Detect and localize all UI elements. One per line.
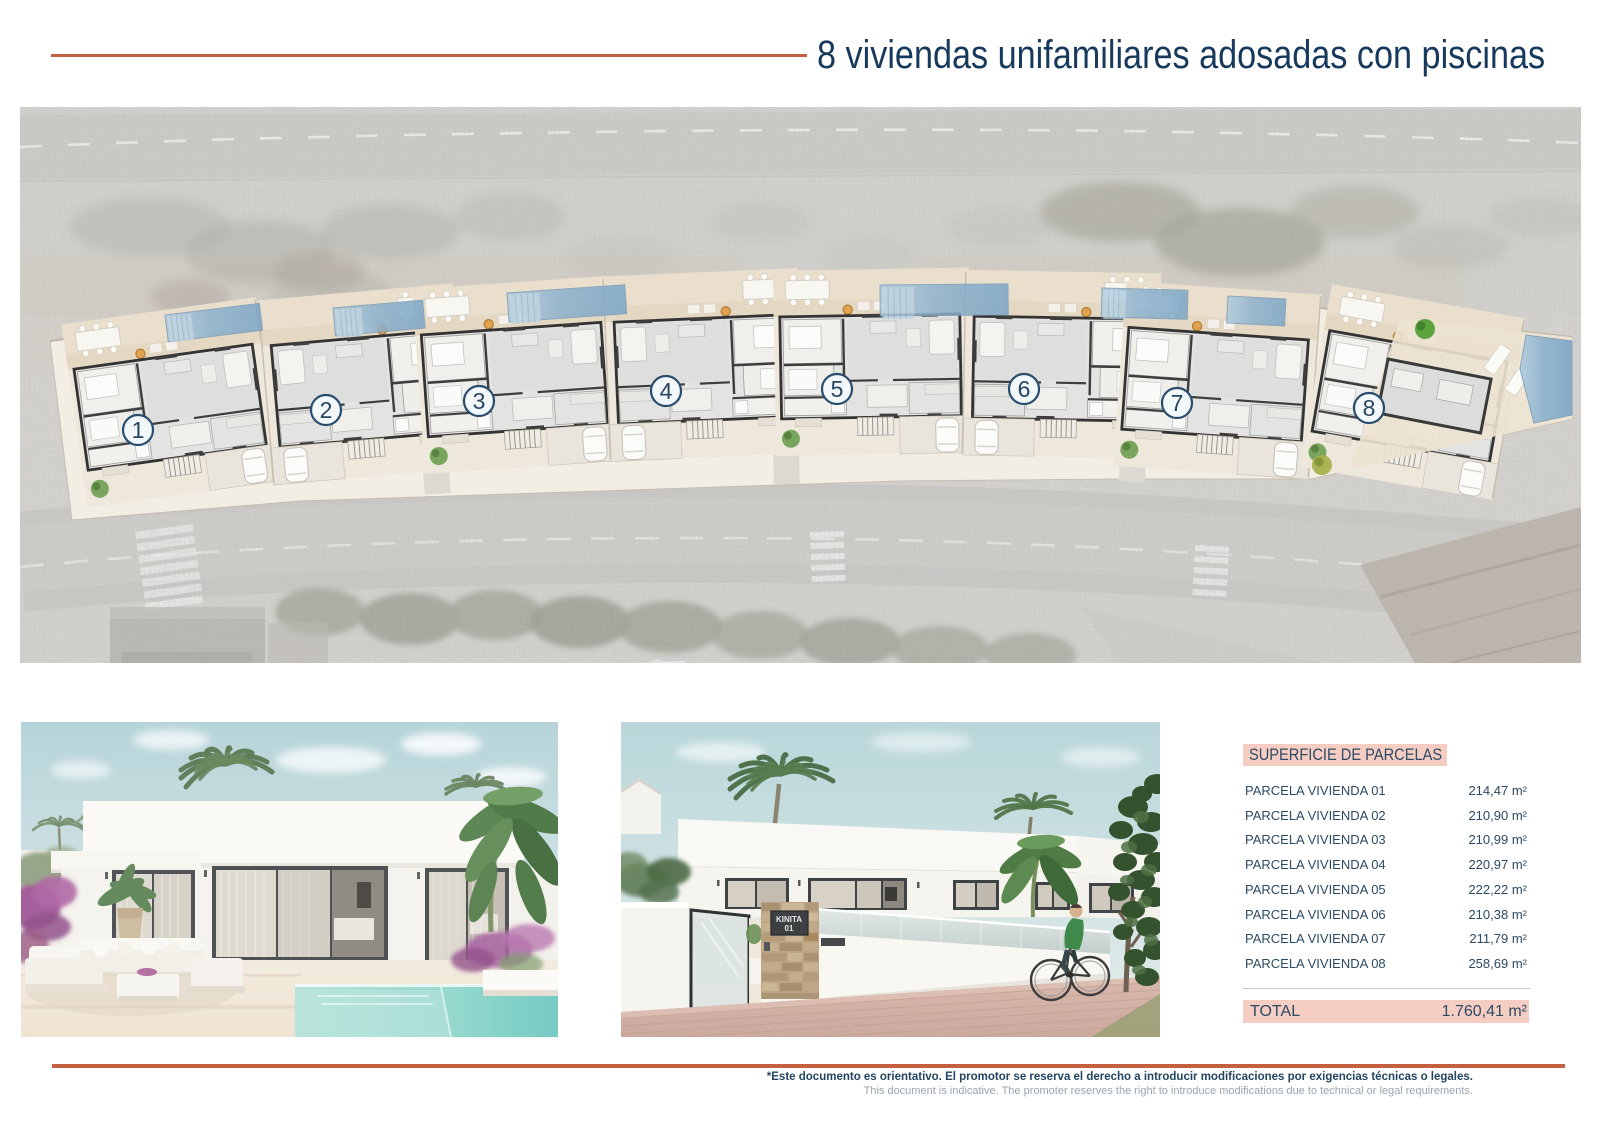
svg-text:5: 5 [831,376,844,402]
svg-text:6: 6 [1018,376,1031,402]
svg-text:4: 4 [660,378,673,404]
svg-text:2: 2 [320,397,333,423]
svg-text:8: 8 [1363,395,1376,421]
svg-text:7: 7 [1171,390,1184,416]
svg-text:1: 1 [132,417,145,443]
svg-text:3: 3 [473,388,486,414]
svg-text:01: 01 [785,924,794,933]
svg-text:KINITA: KINITA [776,915,802,924]
